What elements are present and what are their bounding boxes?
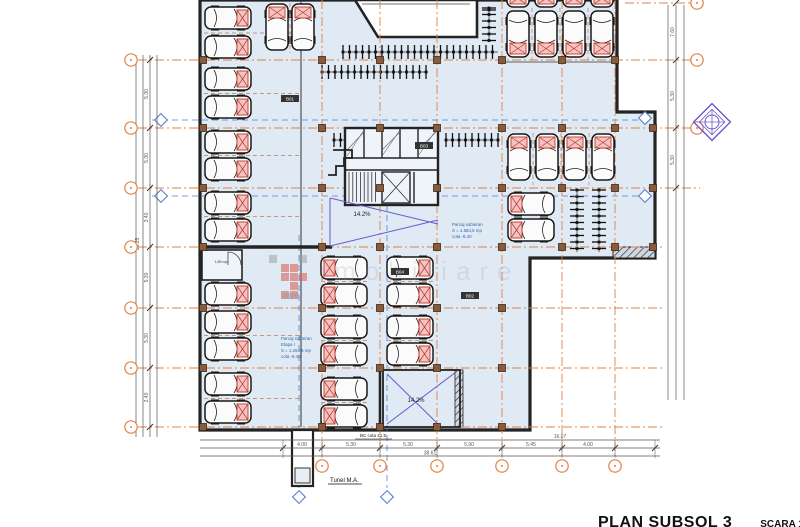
column [559, 125, 566, 132]
column [499, 57, 506, 64]
car-symbol [321, 315, 367, 340]
car-symbol [205, 6, 251, 31]
car-symbol [205, 372, 251, 397]
car-symbol [591, 134, 616, 180]
car-symbol [291, 4, 316, 50]
title-block: PLAN SUBSOL 3 SCARA 1:100 [598, 514, 800, 527]
room-area-label: 1,65 mp [215, 260, 228, 264]
dim-bottom: 5.30 [346, 442, 356, 448]
car-symbol [205, 35, 251, 60]
ramp-opening [355, 0, 477, 37]
car-symbol [205, 337, 251, 362]
column [612, 125, 619, 132]
car-symbol [562, 11, 587, 57]
dim-right: 5.30 [670, 91, 676, 101]
stair-core [345, 128, 438, 205]
aux-grid-bubble [155, 190, 168, 203]
dim-bottom-subtotal: 16.07 [554, 434, 567, 440]
column [612, 244, 619, 251]
aux-grid-bubble [381, 491, 394, 504]
column [612, 185, 619, 192]
car-symbol [205, 130, 251, 155]
car-symbol [205, 310, 251, 335]
car-symbol [590, 0, 615, 7]
column [650, 125, 657, 132]
ramp-slope-label: 14.2% [353, 212, 371, 218]
column [499, 185, 506, 192]
dim-bottom: 5.90 [464, 442, 474, 448]
dim-bottom-total: 38.61 [424, 451, 437, 457]
car-symbol [265, 4, 290, 50]
column [319, 185, 326, 192]
dim-left: 5.30 [144, 333, 150, 343]
column [559, 185, 566, 192]
car-symbol [535, 134, 560, 180]
hatched-wall [455, 370, 463, 427]
plan-title: PLAN SUBSOL 3 [598, 514, 732, 527]
dim-left: 5.30 [144, 272, 150, 282]
car-symbol [534, 0, 559, 7]
room-label: cota -8.40 [281, 354, 301, 359]
column [377, 185, 384, 192]
column [377, 305, 384, 312]
aux-grid-bubble [293, 491, 306, 504]
car-symbol [205, 157, 251, 182]
room-label: Etapa I [281, 342, 295, 347]
car-symbol [205, 218, 251, 243]
car-symbol [506, 0, 531, 7]
column [559, 57, 566, 64]
car-symbol [387, 283, 433, 308]
room-label: cota -8.40 [452, 234, 472, 239]
column [434, 244, 441, 251]
dim-left: 3.40 [144, 212, 150, 222]
column [200, 244, 207, 251]
column [319, 244, 326, 251]
car-symbol [387, 315, 433, 340]
column [200, 365, 207, 372]
column [499, 244, 506, 251]
car-symbol [563, 134, 588, 180]
column [377, 244, 384, 251]
room-label: Parcaj subteran [281, 336, 312, 341]
car-symbol [506, 11, 531, 57]
car-symbol [205, 95, 251, 120]
column [434, 365, 441, 372]
drawing-sheet: imobiliare14.2%14.2%Tunel M.A.BC cota 41… [0, 0, 800, 527]
column [319, 365, 326, 372]
dim-left: 5.30 [144, 153, 150, 163]
floor-plan-canvas: imobiliare14.2%14.2%Tunel M.A.BC cota 41… [0, 0, 800, 527]
column [650, 244, 657, 251]
car-symbol [387, 342, 433, 367]
dim-bottom: 4.00 [583, 442, 593, 448]
room-tag-text: B04 [396, 270, 405, 275]
column [377, 424, 384, 431]
column [499, 125, 506, 132]
column [377, 365, 384, 372]
column [434, 305, 441, 312]
column [319, 424, 326, 431]
room-tag-text: B03 [420, 144, 429, 149]
plan-scale: SCARA 1:100 [760, 519, 800, 527]
car-symbol [321, 283, 367, 308]
room-label: Parcaj subteran [452, 222, 483, 227]
dim-right: 7.60 [670, 27, 676, 37]
room-label: S = 1.584,5 mp [452, 228, 482, 233]
column [319, 305, 326, 312]
north-symbol [694, 104, 731, 141]
dim-bottom: 5.45 [526, 442, 536, 448]
car-symbol [205, 191, 251, 216]
room-label: S = 1.264,5 mp [281, 348, 311, 353]
car-symbol [508, 192, 554, 217]
column [200, 185, 207, 192]
note-label: BC cota 41.5 [360, 433, 387, 438]
room-tag-text: B01 [286, 97, 295, 102]
car-symbol [590, 11, 615, 57]
column [377, 125, 384, 132]
hatched-wall [613, 247, 655, 258]
column [434, 424, 441, 431]
dim-left: 5.30 [144, 89, 150, 99]
column [200, 57, 207, 64]
column [434, 125, 441, 132]
column [499, 305, 506, 312]
tunnel-label: Tunel M.A. [330, 478, 359, 484]
dim-bottom: 5.30 [403, 442, 413, 448]
column [559, 244, 566, 251]
car-symbol [507, 134, 532, 180]
column [319, 125, 326, 132]
car-symbol [508, 218, 554, 243]
car-symbol [205, 67, 251, 92]
car-symbol [321, 377, 367, 402]
column [499, 365, 506, 372]
dim-bottom: 4.00 [297, 442, 307, 448]
column [612, 57, 619, 64]
dim-left: 2.40 [144, 392, 150, 402]
column [200, 125, 207, 132]
car-symbol [534, 11, 559, 57]
car-symbol [562, 0, 587, 7]
car-symbol [205, 282, 251, 307]
watermark-text: imobiliare [319, 256, 520, 286]
aux-grid-bubble [155, 114, 168, 127]
dim-right: 5.30 [670, 155, 676, 165]
column [200, 305, 207, 312]
column [650, 185, 657, 192]
car-symbol [205, 400, 251, 425]
room-tag-text: B02 [466, 294, 475, 299]
grid-bubble [691, 0, 703, 9]
column [200, 424, 207, 431]
column [434, 185, 441, 192]
column [377, 57, 384, 64]
car-symbol [321, 342, 367, 367]
car-symbol [321, 404, 367, 429]
column [319, 57, 326, 64]
column [434, 57, 441, 64]
column [499, 424, 506, 431]
ramp-slope-label: 14.2% [407, 398, 425, 404]
